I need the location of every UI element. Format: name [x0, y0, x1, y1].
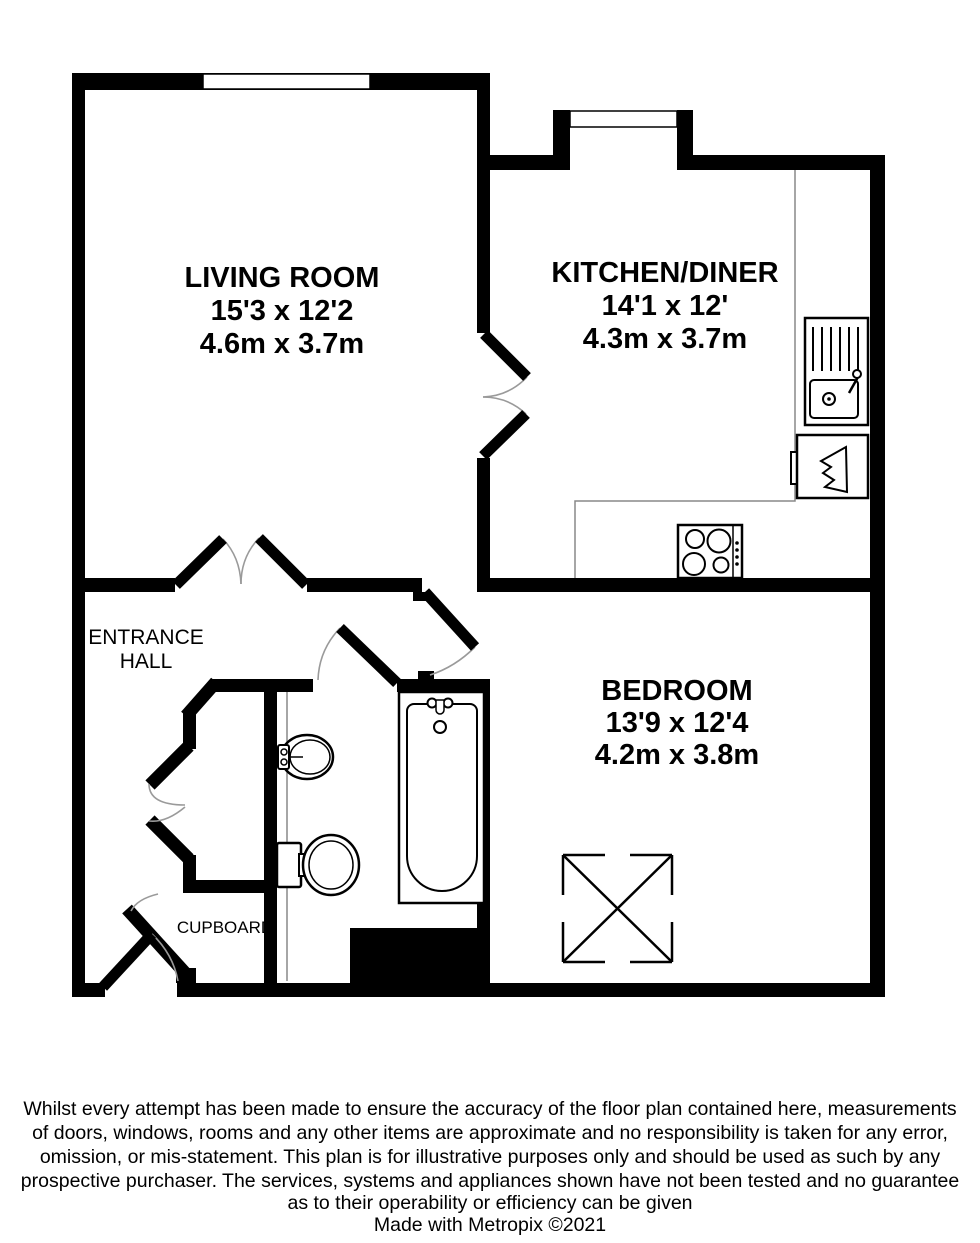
- kitchen-window: [570, 111, 677, 127]
- entrance-hall-label-line2: HALL: [120, 650, 173, 673]
- entrance-hall-label-line1: ENTRANCE: [88, 626, 204, 649]
- disclaimer-line: of doors, windows, rooms and any other i…: [32, 1122, 948, 1144]
- toilet-cistern: [277, 843, 301, 887]
- toilet-icon: [277, 835, 359, 895]
- bathroom-door-leaf: [340, 628, 397, 683]
- bedroom-metric: 4.2m x 3.8m: [595, 739, 759, 771]
- disclaimer-line: prospective purchaser. The services, sys…: [21, 1170, 959, 1192]
- living-hall-door-leaf-left: [176, 539, 223, 585]
- kitchen-sink-icon: [805, 318, 868, 425]
- toilet-bowl: [303, 835, 359, 895]
- cupboard-label: CUPBOARD: [177, 918, 273, 937]
- living-kitchen-door-leaf-upper: [484, 334, 527, 377]
- kitchen-appliance-icon: [791, 435, 868, 498]
- floorplan-drawing: LIVING ROOM 15'3 x 12'2 4.6m x 3.7m KITC…: [0, 0, 980, 1243]
- living-kitchen-door-leaf-lower: [483, 414, 526, 456]
- living-room-label: LIVING ROOM: [185, 262, 380, 294]
- sink-drain-dot: [827, 397, 831, 401]
- bath-icon: [399, 692, 484, 903]
- living-kitchen-door-arc-upper: [483, 377, 527, 397]
- wall-diagonal: [150, 746, 189, 785]
- living-room-metric: 4.6m x 3.7m: [200, 328, 364, 360]
- disclaimer-line: omission, or mis-statement. This plan is…: [40, 1146, 941, 1168]
- living-hall-door-leaf-right: [259, 538, 306, 585]
- disclaimer-line: Whilst every attempt has been made to en…: [23, 1098, 957, 1120]
- living-hall-door-arc-left: [223, 539, 241, 584]
- living-hall-door-arc-right: [241, 538, 259, 584]
- bath-tap: [444, 699, 453, 708]
- living-room-window: [203, 74, 370, 89]
- disclaimer-line: as to their operability or efficiency ca…: [287, 1192, 692, 1214]
- metropix-credit: Made with Metropix ©2021: [374, 1214, 606, 1236]
- hob-icon: [678, 525, 742, 578]
- bath-overflow: [434, 721, 446, 733]
- bedroom-door-arc: [430, 647, 475, 675]
- entrance-door-leaf: [103, 934, 152, 987]
- sink-tap-head: [853, 370, 861, 378]
- wardrobe-cross: [563, 855, 672, 962]
- bedroom-imperial: 13'9 x 12'4: [606, 707, 749, 739]
- living-kitchen-door-arc-lower: [483, 397, 526, 414]
- wall-diagonal: [186, 682, 216, 716]
- bathroom-door-arc: [318, 628, 340, 680]
- wardrobe-icon: [563, 855, 672, 962]
- wall-diagonal: [150, 820, 189, 859]
- bath-spout: [436, 700, 444, 714]
- kitchen-imperial: 14'1 x 12': [602, 290, 729, 322]
- floorplan-page: LIVING ROOM 15'3 x 12'2 4.6m x 3.7m KITC…: [0, 0, 980, 1243]
- kitchen-metric: 4.3m x 3.7m: [583, 323, 747, 355]
- living-room-imperial: 15'3 x 12'2: [211, 295, 354, 327]
- bedroom-door-leaf: [425, 592, 475, 647]
- kitchen-label: KITCHEN/DINER: [551, 257, 778, 289]
- bath-tap: [428, 699, 437, 708]
- disclaimer-block: Whilst every attempt has been made to en…: [21, 1098, 959, 1236]
- bedroom-label: BEDROOM: [601, 675, 752, 707]
